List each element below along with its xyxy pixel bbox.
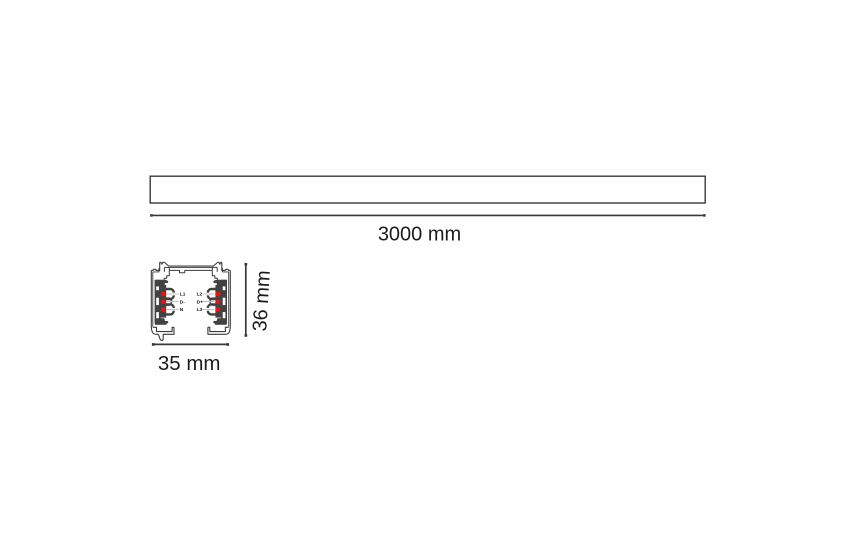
svg-text:35 mm: 35 mm xyxy=(158,352,221,375)
svg-text:L1: L1 xyxy=(180,292,186,298)
svg-text:L3: L3 xyxy=(197,307,203,313)
svg-text:D-: D- xyxy=(180,299,185,305)
svg-text:D+: D+ xyxy=(197,299,203,305)
svg-text:L2: L2 xyxy=(197,292,203,298)
svg-text:36 mm: 36 mm xyxy=(249,270,275,332)
svg-text:3000 mm: 3000 mm xyxy=(378,224,461,246)
svg-text:N: N xyxy=(180,307,184,313)
